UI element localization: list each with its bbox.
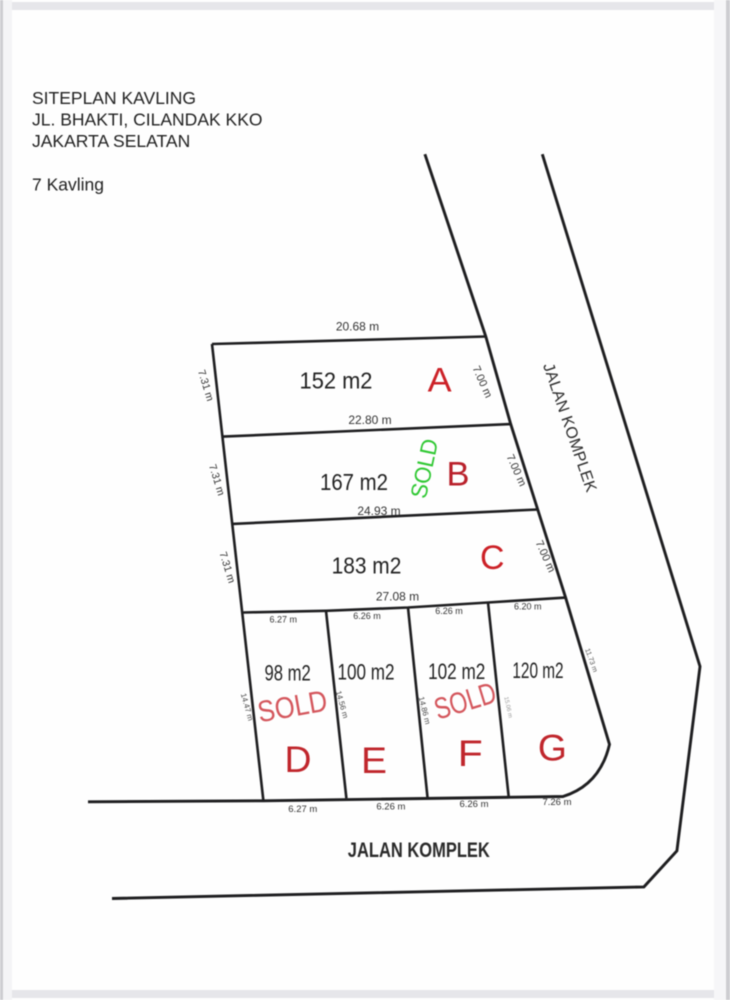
svg-text:JALAN KOMPLEK: JALAN KOMPLEK (348, 839, 490, 862)
svg-text:F: F (458, 733, 483, 774)
svg-text:22.80 m: 22.80 m (348, 413, 391, 427)
svg-text:167 m2: 167 m2 (320, 469, 388, 495)
svg-text:6.26 m: 6.26 m (435, 606, 463, 616)
svg-text:JAKARTA SELATAN: JAKARTA SELATAN (32, 131, 190, 151)
svg-text:A: A (428, 362, 452, 400)
svg-text:7 Kavling: 7 Kavling (32, 175, 104, 195)
svg-text:B: B (447, 456, 470, 494)
svg-text:183 m2: 183 m2 (332, 552, 402, 578)
svg-text:100 m2: 100 m2 (338, 660, 395, 685)
svg-text:98 m2: 98 m2 (264, 660, 310, 685)
svg-text:SITEPLAN KAVLING: SITEPLAN KAVLING (32, 88, 196, 108)
svg-text:6.26 m: 6.26 m (376, 802, 405, 813)
svg-text:120 m2: 120 m2 (512, 658, 563, 683)
svg-text:C: C (480, 539, 505, 577)
svg-text:7.26 m: 7.26 m (542, 797, 571, 808)
svg-text:6.26 m: 6.26 m (459, 799, 488, 810)
svg-text:27.08 m: 27.08 m (376, 589, 419, 603)
svg-text:20.68 m: 20.68 m (336, 320, 379, 334)
svg-text:6.26 m: 6.26 m (353, 611, 381, 621)
svg-text:D: D (285, 739, 312, 780)
svg-text:6.20 m: 6.20 m (514, 602, 542, 612)
svg-text:E: E (361, 740, 387, 781)
svg-text:6.27 m: 6.27 m (288, 804, 317, 815)
svg-text:G: G (538, 728, 567, 769)
svg-text:152 m2: 152 m2 (300, 368, 373, 394)
svg-text:JL. BHAKTI, CILANDAK KKO: JL. BHAKTI, CILANDAK KKO (32, 110, 262, 130)
svg-text:6.27 m: 6.27 m (269, 615, 297, 625)
svg-text:24.93 m: 24.93 m (357, 504, 400, 518)
